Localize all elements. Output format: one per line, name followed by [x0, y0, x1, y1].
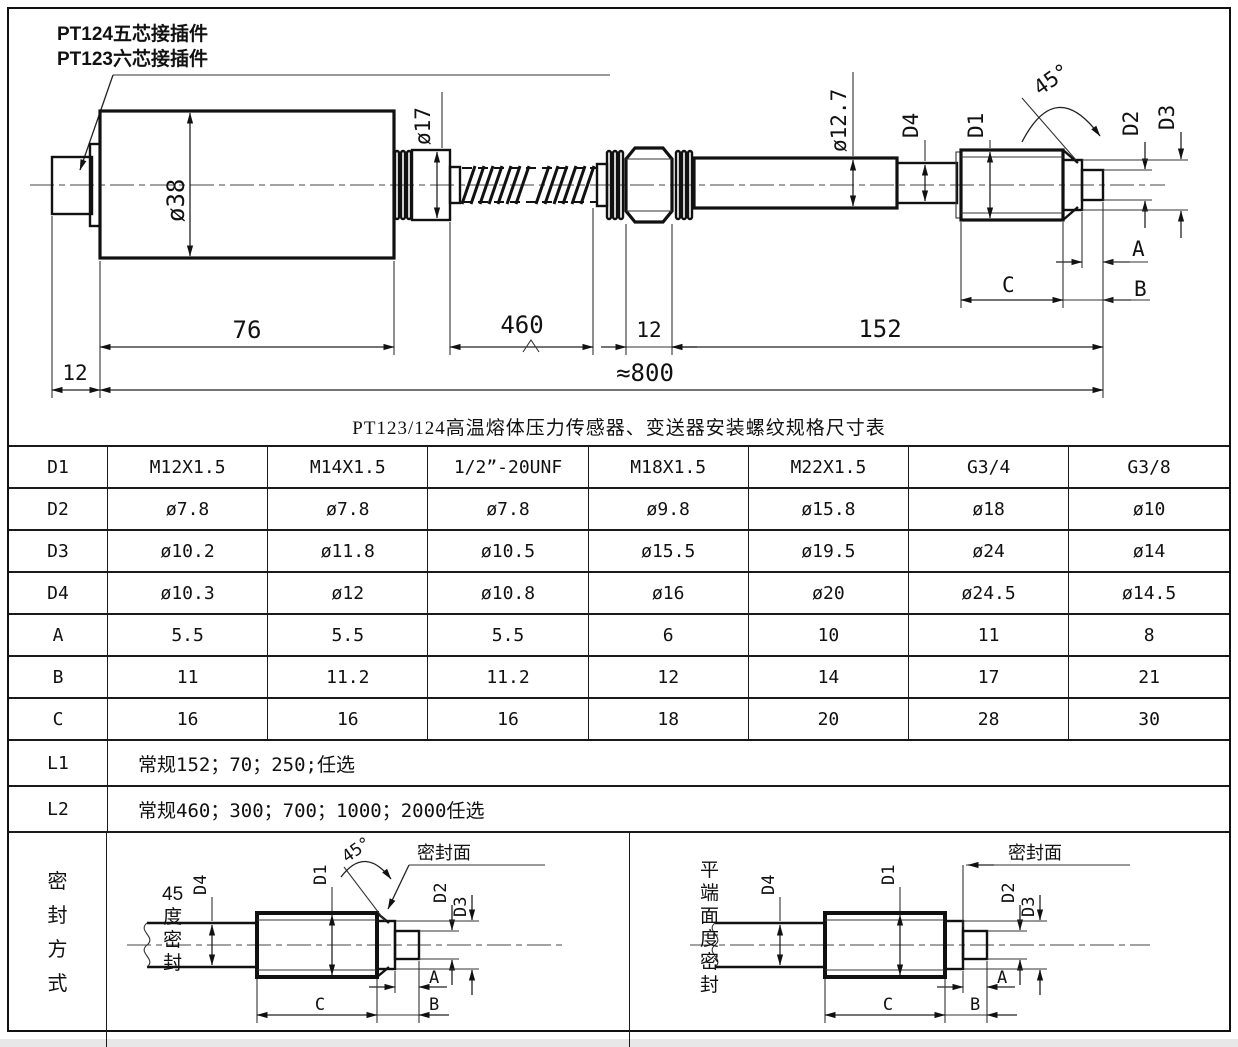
table-cell: 30	[1069, 698, 1229, 740]
l1-note: 常规152；70；250;任选	[108, 740, 1230, 786]
table-cell: 1/2”-20UNF	[428, 446, 588, 488]
table-cell: ø9.8	[588, 488, 748, 530]
table-cell: M22X1.5	[748, 446, 908, 488]
dim-12-mid: 12	[636, 318, 661, 342]
table-cell: ø11.8	[268, 530, 428, 572]
sealflat-d1-label: D1	[879, 865, 899, 885]
table-row: A 5.5 5.5 5.5 6 10 11 8	[9, 614, 1229, 656]
abc-dims: A C B	[961, 202, 1150, 310]
seal45-d3-label: D3	[451, 897, 471, 917]
table-cell: ø16	[588, 572, 748, 614]
sensor-drawing: PT124五芯接插件 PT123六芯接插件 ø38 ø17	[9, 9, 1229, 407]
table-row: D4 ø10.3 ø12 ø10.8 ø16 ø20 ø24.5 ø14.5	[9, 572, 1229, 614]
table-cell: 14	[748, 656, 908, 698]
seal-method-header: 密 封 方 式	[9, 833, 107, 1047]
table-row: L2 常规460；300；700；1000；2000任选	[9, 786, 1229, 832]
seal-45-diagram: D4 D1 45° 密封面 D	[107, 833, 628, 1045]
row-header: B	[9, 656, 108, 698]
row-header: C	[9, 698, 108, 740]
callout-line1: PT124五芯接插件	[57, 22, 208, 45]
row-header: L1	[9, 740, 108, 786]
seal-header-char: 式	[48, 967, 68, 996]
seal-45-label-line: 密	[163, 929, 182, 952]
connector-callout: PT124五芯接插件 PT123六芯接插件	[57, 22, 610, 170]
seal45-a-label: A	[429, 968, 439, 988]
seal-flat-label-line: 面	[700, 905, 719, 928]
table-cell: ø14	[1069, 530, 1229, 572]
table-cell: ø10.3	[108, 572, 268, 614]
table-cell: ø14.5	[1069, 572, 1229, 614]
seal-header-char: 封	[48, 899, 68, 928]
seal-header-char: 方	[48, 933, 68, 962]
table-cell: ø10.5	[428, 530, 588, 572]
seal45-d4-label: D4	[191, 875, 211, 895]
sealflat-b-label: B	[970, 995, 980, 1015]
dim-76: 76	[233, 316, 262, 344]
seal-45-label: 45 度 密 封	[162, 883, 183, 975]
table-cell: 11.2	[428, 656, 588, 698]
l2-note: 常规460；300；700；1000；2000任选	[108, 786, 1230, 832]
table-cell: 21	[1069, 656, 1229, 698]
seal-header-char: 密	[48, 865, 68, 894]
table-cell: 16	[428, 698, 588, 740]
seal45-d1-label: D1	[311, 865, 331, 885]
table-row: B 11 11.2 11.2 12 14 17 21	[9, 656, 1229, 698]
dim-c-label: C	[1002, 273, 1015, 297]
dim-body-dia: ø38	[162, 179, 190, 222]
sealflat-d4-label: D4	[759, 875, 779, 895]
table-cell: M12X1.5	[108, 446, 268, 488]
dim-collar-dia: ø17	[411, 107, 435, 145]
seal-45-label-line: 度	[163, 906, 182, 929]
seal-flat-diagram: D4 D1 密封面 D2	[630, 833, 1227, 1045]
thread-spec-table: D1 M12X1.5 M14X1.5 1/2”-20UNF M18X1.5 M2…	[9, 445, 1229, 833]
table-cell: ø24	[909, 530, 1069, 572]
table-row: L1 常规152；70；250;任选	[9, 740, 1229, 786]
table-cell: ø19.5	[748, 530, 908, 572]
table-cell: ø10.2	[108, 530, 268, 572]
seal-flat-label-line: 密	[700, 951, 719, 974]
dim-152: 152	[858, 315, 901, 343]
table-cell: 16	[108, 698, 268, 740]
seal-45-label-line: 45	[162, 883, 183, 906]
table-cell: 5.5	[268, 614, 428, 656]
main-drawing-area: PT124五芯接插件 PT123六芯接插件 ø38 ø17	[9, 9, 1229, 407]
table-cell: 11.2	[268, 656, 428, 698]
row-header: D1	[9, 446, 108, 488]
sealflat-a-label: A	[997, 968, 1007, 988]
dim-stem-dia: ø12.7	[827, 89, 851, 152]
table-row: D1 M12X1.5 M14X1.5 1/2”-20UNF M18X1.5 M2…	[9, 446, 1229, 488]
table-cell: 28	[909, 698, 1069, 740]
sealflat-d2-label: D2	[999, 883, 1019, 903]
dim-d2-label: D2	[1119, 111, 1143, 136]
seal-method-section: 密 封 方 式 45 度 密 封 D4	[9, 833, 1229, 1047]
table-cell: 10	[748, 614, 908, 656]
row-header: L2	[9, 786, 108, 832]
seal45-b-label: B	[429, 995, 439, 1015]
table-cell: ø15.5	[588, 530, 748, 572]
table-cell: ø10.8	[428, 572, 588, 614]
dim-a-label: A	[1132, 237, 1145, 261]
table-cell: 8	[1069, 614, 1229, 656]
table-cell: ø7.8	[108, 488, 268, 530]
table-cell: 5.5	[108, 614, 268, 656]
table-cell: ø7.8	[428, 488, 588, 530]
sensor-tip	[1063, 160, 1103, 210]
table-cell: G3/8	[1069, 446, 1229, 488]
dim-12-left: 12	[62, 361, 87, 385]
table-row: D2 ø7.8 ø7.8 ø7.8 ø9.8 ø15.8 ø18 ø10	[9, 488, 1229, 530]
thread-section: D1	[961, 113, 1078, 220]
dim-d4-label: D4	[899, 113, 923, 138]
table-cell: M14X1.5	[268, 446, 428, 488]
dim-angle-label: 45°	[1029, 59, 1074, 100]
dim-d3-label: D3	[1155, 105, 1179, 130]
table-cell: 6	[588, 614, 748, 656]
dim-460: 460	[500, 311, 543, 339]
collar: ø17	[411, 92, 450, 220]
table-cell: ø7.8	[268, 488, 428, 530]
engineering-drawing-page: PT124五芯接插件 PT123六芯接插件 ø38 ø17	[0, 0, 1238, 1039]
table-cell: 17	[909, 656, 1069, 698]
table-cell: 18	[588, 698, 748, 740]
table-cell: 12	[588, 656, 748, 698]
table-cell: 16	[268, 698, 428, 740]
table-row: C 16 16 16 18 20 28 30	[9, 698, 1229, 740]
table-cell: 5.5	[428, 614, 588, 656]
length-dims: 76 460 12 152 12 ≈800	[52, 208, 1103, 398]
seal-flat-label-line: 平	[700, 859, 719, 882]
table-row: D3 ø10.2 ø11.8 ø10.5 ø15.5 ø19.5 ø24 ø14	[9, 530, 1229, 572]
table-cell: 20	[748, 698, 908, 740]
sealflat-seal-face-label: 密封面	[1008, 843, 1062, 863]
table-cell: ø20	[748, 572, 908, 614]
drawing-border-frame: PT124五芯接插件 PT123六芯接插件 ø38 ø17	[7, 7, 1231, 1032]
sealflat-c-label: C	[883, 995, 893, 1015]
table-cell: ø10	[1069, 488, 1229, 530]
seal-flat-cell: 平 端 面 度 密 封 D4 D1	[630, 833, 1229, 1047]
seal-flat-label-line: 端	[700, 882, 719, 905]
seal-45-label-line: 封	[163, 952, 182, 975]
seal45-d2-label: D2	[431, 883, 451, 903]
d4-section: D4	[897, 113, 961, 218]
table-title: PT123/124高温熔体压力传感器、变送器安装螺纹规格尺寸表	[9, 407, 1229, 445]
seal-45-cell: 45 度 密 封 D4 D1	[107, 833, 630, 1047]
chamfer-angle-callout: 45°	[1022, 59, 1100, 160]
callout-line2: PT123六芯接插件	[57, 47, 208, 70]
seal-flat-label-line: 度	[700, 928, 719, 951]
table-cell: M18X1.5	[588, 446, 748, 488]
seal45-c-label: C	[315, 995, 325, 1015]
row-header: D4	[9, 572, 108, 614]
seal-flat-label: 平 端 面 度 密 封	[700, 859, 719, 997]
probe-stem: ø12.7	[694, 72, 897, 208]
table-cell: ø18	[909, 488, 1069, 530]
row-header: D3	[9, 530, 108, 572]
row-header: A	[9, 614, 108, 656]
dim-b-label: B	[1134, 277, 1147, 301]
row-header: D2	[9, 488, 108, 530]
dim-800: ≈800	[616, 359, 674, 387]
dim-d1-label: D1	[964, 113, 988, 138]
sealflat-d3-label: D3	[1019, 897, 1039, 917]
table-cell: 11	[909, 614, 1069, 656]
table-cell: G3/4	[909, 446, 1069, 488]
table-cell: ø15.8	[748, 488, 908, 530]
seal-flat-label-line: 封	[700, 974, 719, 997]
table-cell: ø12	[268, 572, 428, 614]
seal45-seal-face-label: 密封面	[417, 843, 471, 863]
table-cell: ø24.5	[909, 572, 1069, 614]
table-cell: 11	[108, 656, 268, 698]
